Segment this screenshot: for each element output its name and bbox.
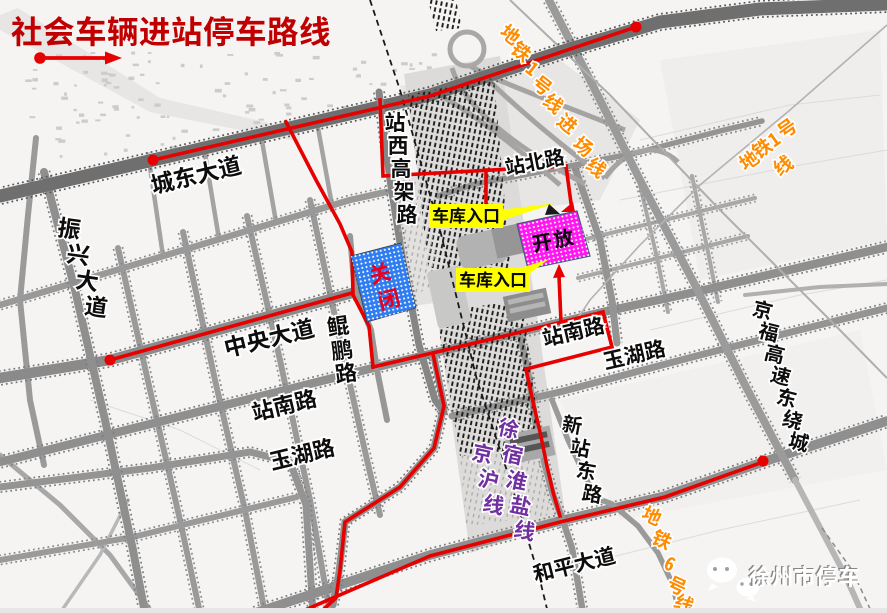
svg-text:车库入口: 车库入口 [432, 202, 500, 227]
svg-text:路: 路 [333, 355, 359, 390]
svg-text:道: 道 [83, 287, 111, 324]
svg-text:路: 路 [397, 199, 418, 229]
svg-text:社会车辆进站停车路线: 社会车辆进站停车路线 [11, 7, 331, 53]
svg-text:徐州市停车: 徐州市停车 [749, 560, 861, 592]
svg-text:车库入口: 车库入口 [459, 266, 527, 291]
